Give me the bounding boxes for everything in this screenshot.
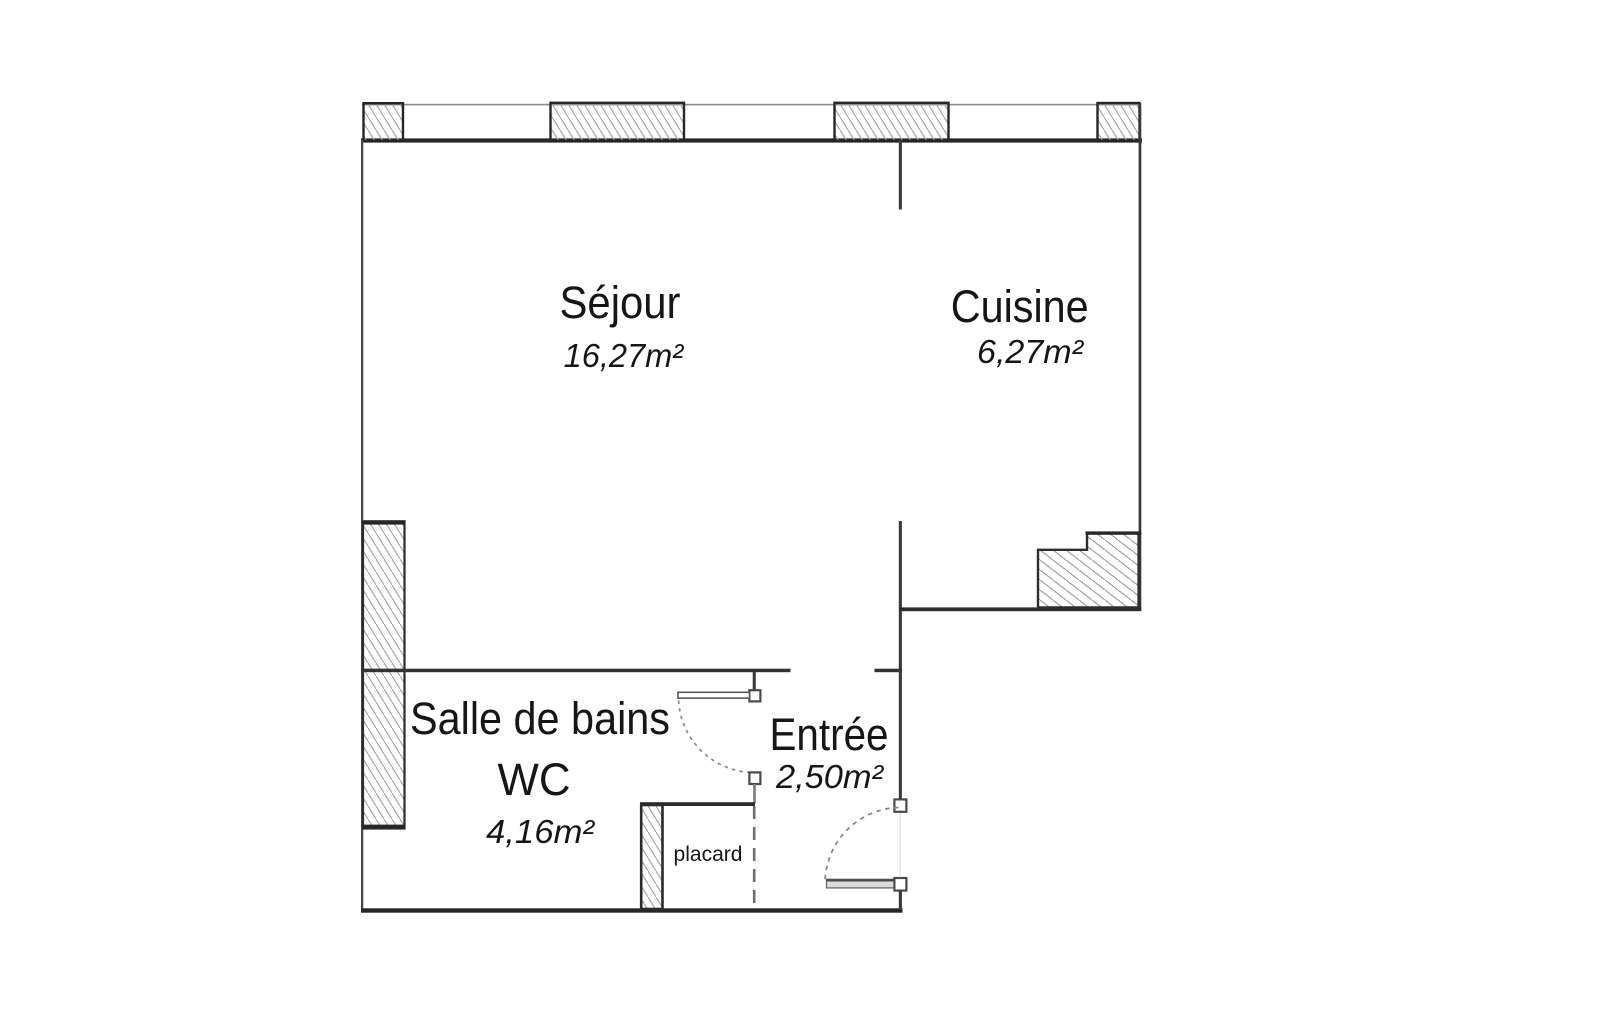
- svg-text:Salle de bains: Salle de bains: [410, 693, 670, 744]
- svg-text:6,27m²: 6,27m²: [977, 333, 1084, 370]
- svg-text:2,50m²: 2,50m²: [775, 758, 884, 795]
- svg-text:placard: placard: [674, 843, 743, 866]
- svg-text:4,16m²: 4,16m²: [486, 813, 595, 850]
- svg-text:Séjour: Séjour: [560, 277, 681, 328]
- svg-text:Cuisine: Cuisine: [951, 281, 1089, 332]
- svg-text:16,27m²: 16,27m²: [564, 337, 684, 374]
- svg-text:WC: WC: [498, 754, 571, 805]
- svg-text:Entrée: Entrée: [770, 709, 889, 760]
